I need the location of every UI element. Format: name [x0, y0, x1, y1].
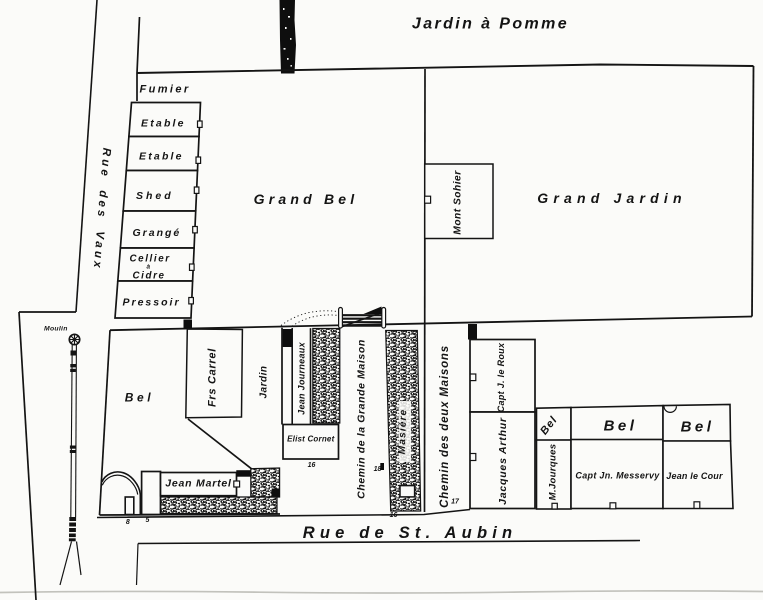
svg-text:Cidre: Cidre	[133, 271, 166, 282]
svg-text:Frs Carrel: Frs Carrel	[207, 348, 219, 407]
svg-text:Elist Cornet: Elist Cornet	[287, 435, 334, 444]
svg-text:Chemin de la Grande Maison: Chemin de la Grande Maison	[356, 339, 368, 499]
svg-text:Grand Jardin: Grand Jardin	[537, 190, 687, 206]
svg-text:Capt Jn. Messervy: Capt Jn. Messervy	[575, 471, 660, 481]
svg-text:Chemin des deux Maisons: Chemin des deux Maisons	[439, 345, 451, 508]
svg-text:Grand Bel: Grand Bel	[254, 191, 359, 207]
svg-text:Jean Journeaux: Jean Journeaux	[296, 341, 306, 414]
svg-text:Pressoir: Pressoir	[123, 297, 181, 309]
svg-text:Moulin: Moulin	[44, 326, 68, 333]
svg-text:16: 16	[308, 462, 316, 469]
svg-text:Jardin à Pomme: Jardin à Pomme	[412, 16, 569, 33]
svg-text:Bel: Bel	[681, 419, 715, 436]
svg-text:Grangé: Grangé	[133, 227, 182, 239]
svg-text:5: 5	[146, 517, 150, 524]
svg-text:Mont Sohier: Mont Sohier	[453, 170, 464, 235]
svg-text:Jacques Arthur: Jacques Arthur	[497, 417, 509, 505]
svg-text:M.Jourques: M.Jourques	[548, 444, 559, 501]
svg-text:Masière: Masière	[397, 408, 410, 454]
svg-text:17: 17	[451, 499, 460, 506]
svg-text:Jardin: Jardin	[259, 365, 270, 398]
svg-text:à: à	[147, 264, 151, 271]
svg-text:Bel: Bel	[125, 391, 154, 405]
svg-text:18: 18	[374, 466, 382, 473]
svg-text:Fumier: Fumier	[140, 84, 191, 96]
svg-text:Rue de St. Aubin: Rue de St. Aubin	[303, 524, 518, 542]
svg-text:Jean le Cour: Jean le Cour	[666, 471, 723, 481]
svg-text:Jean Martel: Jean Martel	[165, 478, 232, 490]
svg-text:8: 8	[126, 519, 130, 526]
svg-text:Bel: Bel	[604, 418, 638, 435]
svg-text:Shed: Shed	[136, 190, 174, 202]
svg-text:Etable: Etable	[141, 118, 186, 130]
svg-text:Capt J. le Roux: Capt J. le Roux	[496, 342, 506, 412]
svg-text:Etable: Etable	[139, 151, 184, 163]
